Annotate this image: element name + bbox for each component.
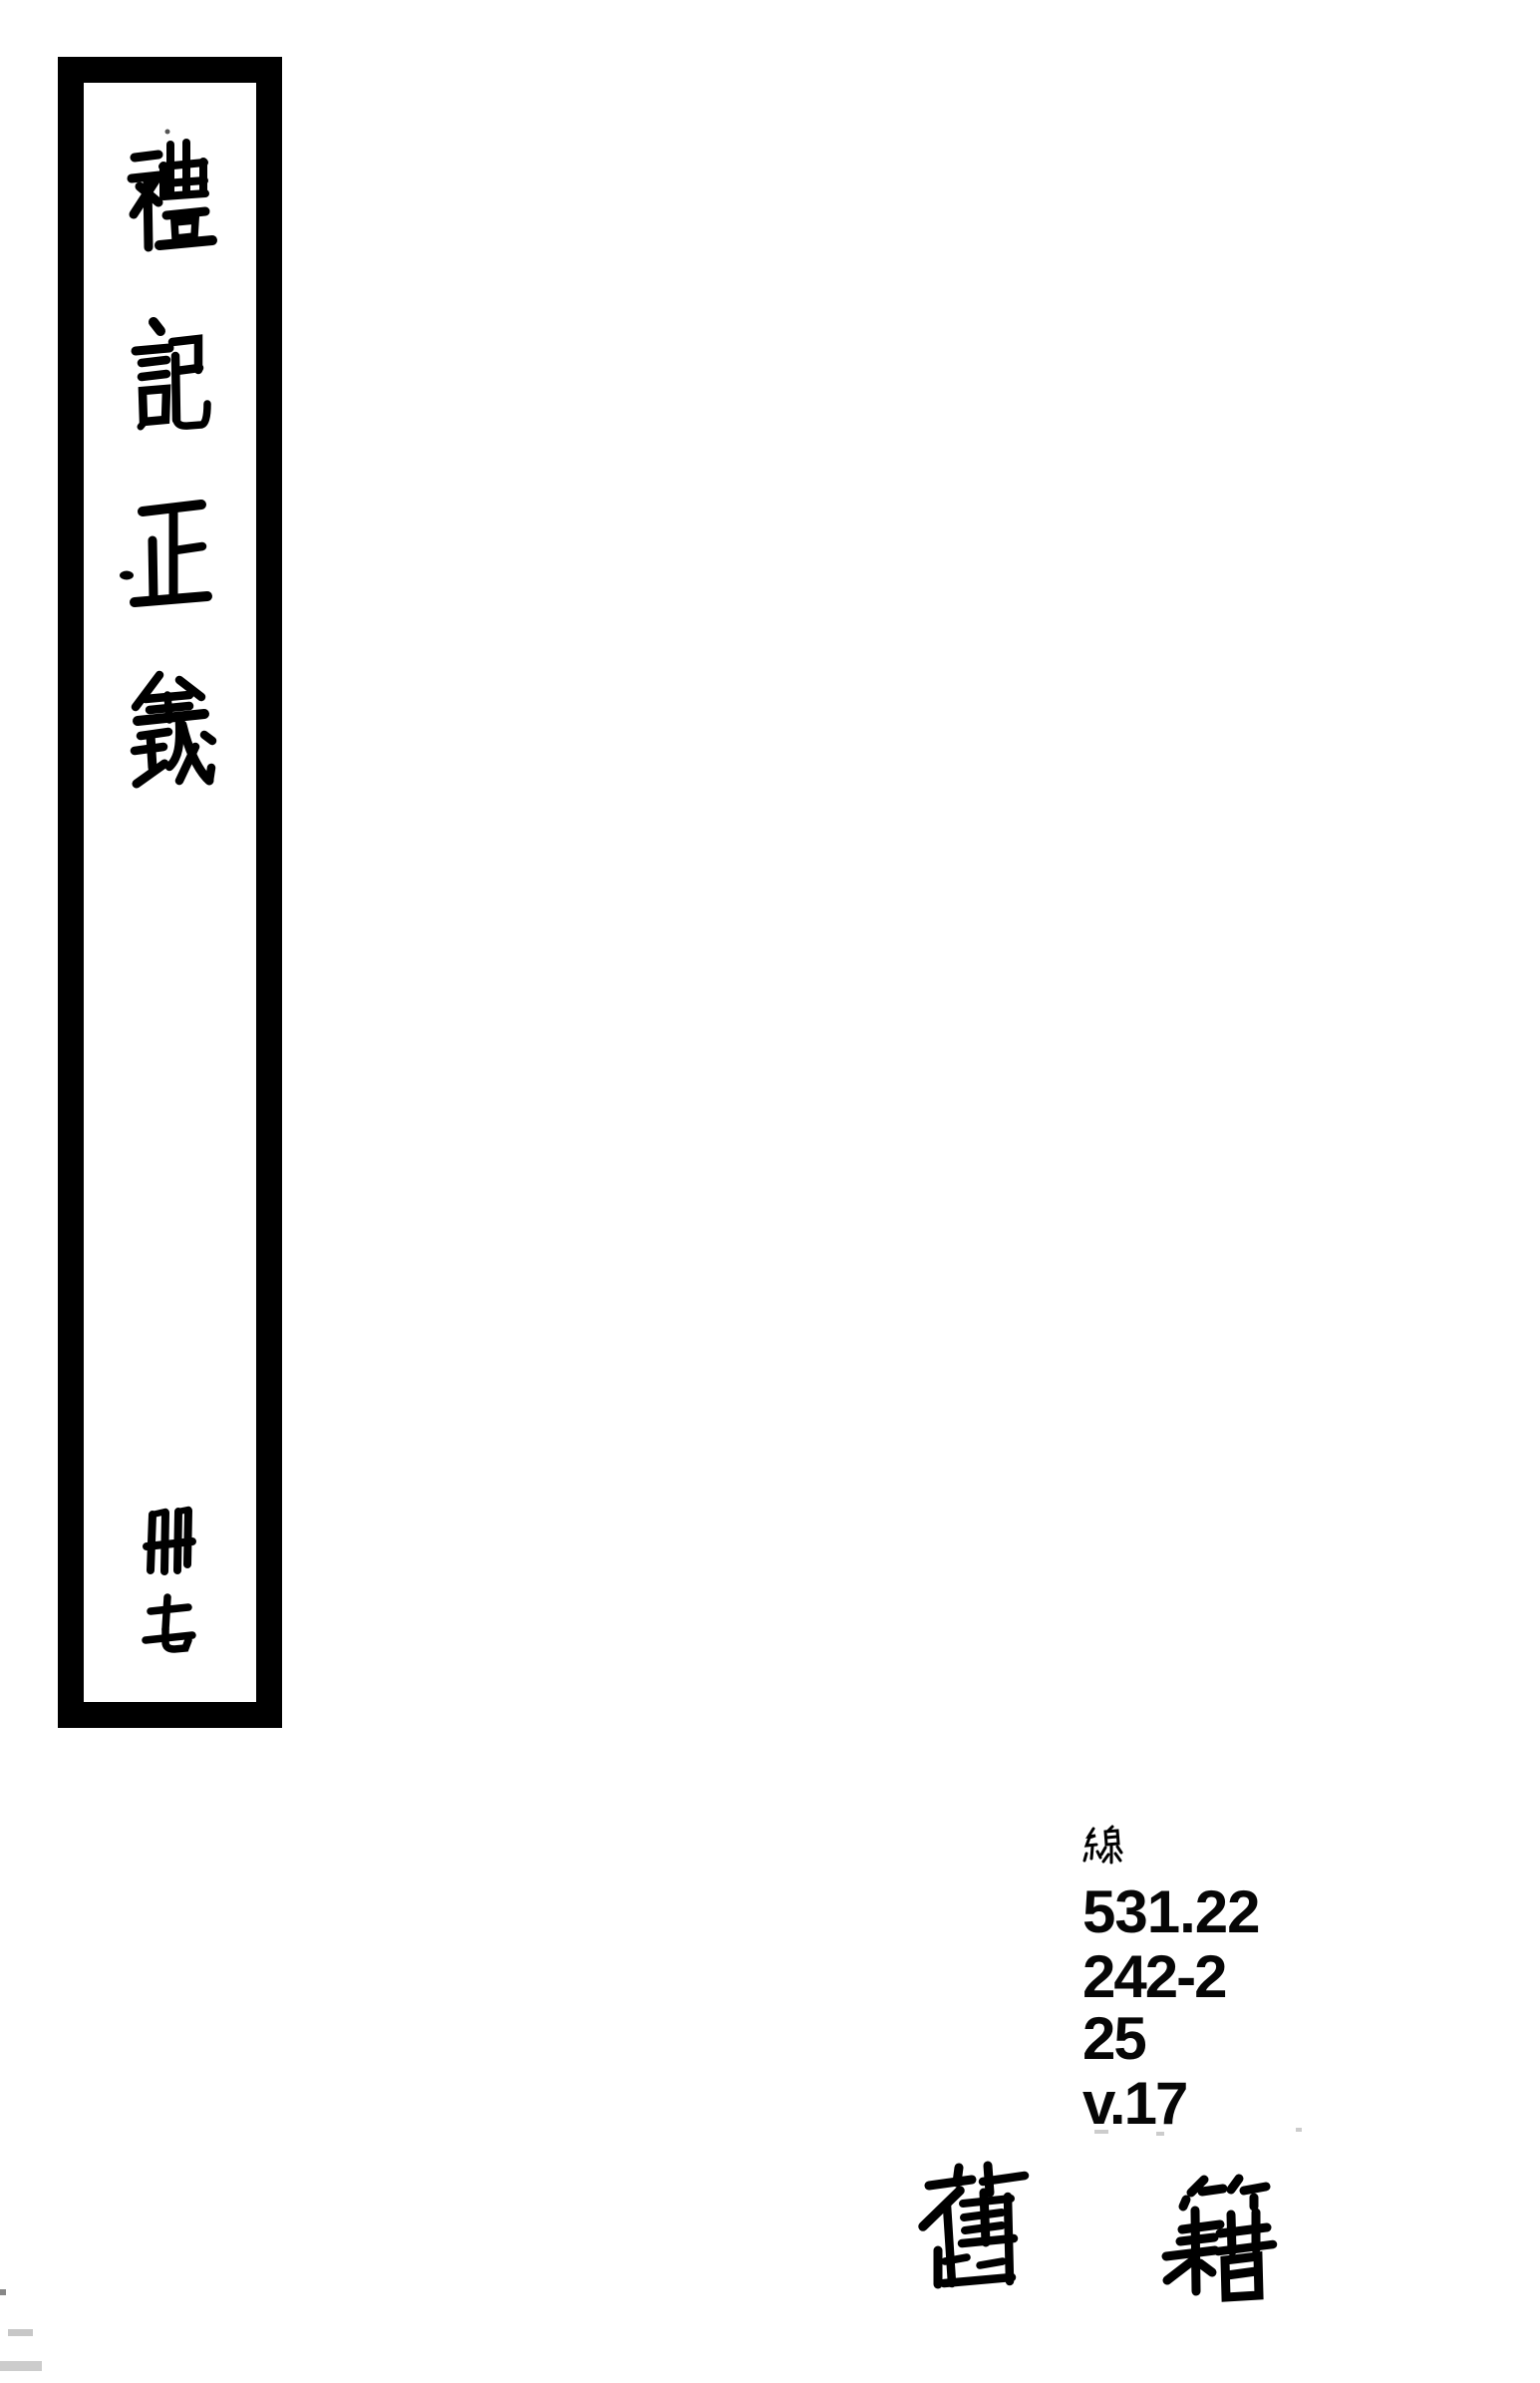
- svg-text:242-2: 242-2: [1082, 1943, 1225, 2010]
- svg-text:531.22: 531.22: [1082, 1878, 1260, 1945]
- svg-text:25: 25: [1082, 2005, 1145, 2072]
- svg-text:v.17: v.17: [1082, 2070, 1186, 2137]
